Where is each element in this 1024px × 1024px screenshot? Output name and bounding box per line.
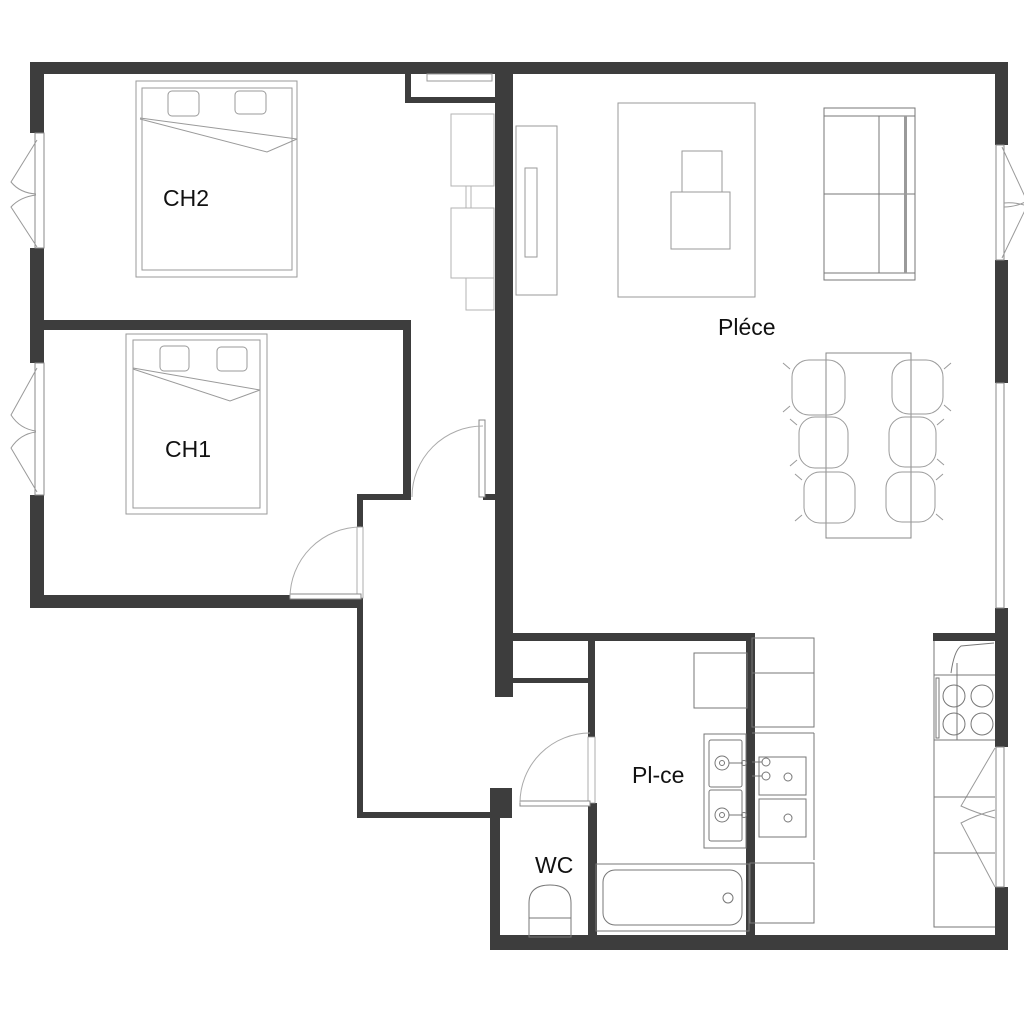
armchair — [671, 192, 730, 249]
stove-burner-icon — [943, 713, 965, 735]
tap-icon — [762, 772, 770, 780]
sofa — [824, 108, 915, 280]
bed-ch1-mattress — [133, 340, 260, 508]
bathroom-fixtures — [596, 653, 749, 931]
window-sash-icon — [1002, 147, 1024, 207]
pillow — [168, 91, 199, 116]
door-swing-arc — [520, 733, 590, 803]
chair-armrest — [795, 474, 802, 521]
bathtub — [596, 864, 749, 931]
stove-burner-icon — [943, 685, 965, 707]
wall-top — [30, 62, 1008, 74]
wardrobe-unit — [451, 208, 494, 278]
chair — [804, 472, 855, 523]
window-sash-icon — [961, 810, 995, 887]
wall-ch1-right — [403, 330, 411, 500]
room-label-living: Pléce — [718, 314, 776, 341]
room-label-bathroom: Pl-ce — [632, 762, 684, 789]
chair-armrest — [936, 474, 943, 520]
dining-table — [826, 353, 911, 538]
chair-armrest — [937, 419, 944, 465]
chair — [889, 417, 936, 467]
wall-bathroom-top — [513, 633, 753, 641]
wardrobe-unit — [451, 114, 494, 186]
window-sash-icon — [961, 748, 995, 818]
tv-cabinet-slot — [525, 168, 537, 257]
wall-left — [30, 495, 44, 608]
bathtub-inner — [603, 870, 742, 925]
chair — [799, 417, 848, 468]
chair — [792, 360, 845, 415]
sofa-lines — [824, 116, 915, 273]
door-leaf-bathroom — [520, 801, 590, 806]
wall-corridor-door — [357, 494, 410, 500]
stove-edge — [936, 678, 939, 738]
wall-wc-left — [490, 818, 500, 950]
door-swing-arc — [412, 426, 483, 497]
chair-armrest — [944, 363, 951, 411]
kitchen-counter-outline — [934, 641, 995, 927]
bathtub-drain — [723, 893, 733, 903]
window-living-right — [996, 145, 1004, 260]
bed-ch1 — [126, 334, 267, 514]
room-label-wc: WC — [535, 852, 573, 879]
wall-right — [995, 887, 1008, 950]
window-sash-icon — [11, 195, 37, 247]
wardrobe-connector — [466, 186, 471, 208]
window-ch1 — [35, 363, 44, 495]
kitchen-counter-edge — [752, 733, 814, 860]
wall-wc-left-stub — [490, 788, 512, 818]
chair — [892, 360, 943, 414]
wall-right — [995, 260, 1008, 383]
kitchen-cabinet — [750, 863, 814, 923]
wardrobe-unit-small — [466, 278, 494, 310]
window-kitchen — [996, 747, 1004, 887]
wall-hall-left — [357, 500, 363, 527]
bed-ch2-mattress — [142, 88, 292, 270]
bedroom1-furniture — [126, 334, 267, 514]
window-sash-icon — [11, 368, 37, 431]
wc-toilet — [529, 885, 571, 937]
door-leaf-ch1 — [290, 594, 361, 599]
stove-burner-icon — [971, 685, 993, 707]
wall-ch2-ch1-divider — [30, 320, 411, 330]
stove-burner-icon — [971, 713, 993, 735]
room-label-ch1: CH1 — [165, 436, 211, 463]
kitchen-appliance — [759, 799, 806, 837]
wall-niche-bottom — [405, 97, 495, 103]
wall-left — [30, 248, 44, 363]
wall-right — [995, 608, 1008, 747]
faucet-icon — [715, 808, 729, 822]
wall-central — [495, 62, 513, 697]
drain-icon — [784, 773, 792, 781]
door-swing-arc — [290, 527, 361, 598]
kitchen-fixtures — [750, 638, 995, 927]
dining-set — [783, 353, 951, 538]
blanket-fold — [140, 118, 297, 152]
wall-duct-bottom — [513, 678, 590, 683]
wall-kitchen-top-stub — [933, 633, 995, 641]
hall-wardrobe — [451, 114, 494, 310]
niche-shelf — [427, 74, 492, 81]
coffee-table — [682, 151, 722, 192]
doors — [290, 420, 595, 806]
kitchen-sink-unit — [759, 757, 806, 795]
door-leaf-corridor — [479, 420, 485, 497]
blanket-fold — [133, 368, 260, 401]
door-opening-bathroom — [588, 737, 595, 803]
kitchen-cabinet — [752, 673, 814, 727]
window-ch2 — [35, 133, 44, 248]
pillow — [160, 346, 189, 371]
room-label-ch2: CH2 — [163, 185, 209, 212]
faucet-icon — [720, 761, 725, 766]
toilet — [529, 885, 571, 937]
drain-icon — [784, 814, 792, 822]
rug — [618, 103, 755, 297]
vanity-counter — [704, 734, 746, 848]
pillow — [217, 347, 247, 371]
kitchen-cabinet — [752, 638, 814, 673]
living-room-furniture — [516, 103, 915, 297]
floorplan-drawing — [0, 0, 1024, 1024]
window-sash-icon — [1002, 203, 1024, 258]
window-sash-icon — [11, 432, 37, 492]
wall-lobby-bath — [588, 637, 595, 737]
wall-left — [30, 62, 44, 133]
tap-icon — [762, 758, 770, 766]
chair-armrest — [783, 363, 790, 412]
washing-machine — [694, 653, 747, 708]
chair-armrest — [790, 419, 797, 466]
window-sash-icon — [11, 140, 37, 194]
wall-hall-left — [357, 598, 363, 812]
pillow — [235, 91, 266, 114]
floorplan-canvas: CH2 CH1 Pléce Pl-ce WC — [0, 0, 1024, 1024]
faucet-icon — [720, 813, 725, 818]
wall-hall-bottom — [357, 812, 495, 818]
wall-right — [995, 62, 1008, 145]
door-opening-ch1 — [357, 527, 363, 598]
bedroom2-furniture — [136, 81, 297, 277]
window-living-right-2 — [996, 383, 1004, 608]
faucet-icon — [715, 756, 729, 770]
bed-ch2 — [136, 81, 297, 277]
windows — [11, 133, 1024, 887]
